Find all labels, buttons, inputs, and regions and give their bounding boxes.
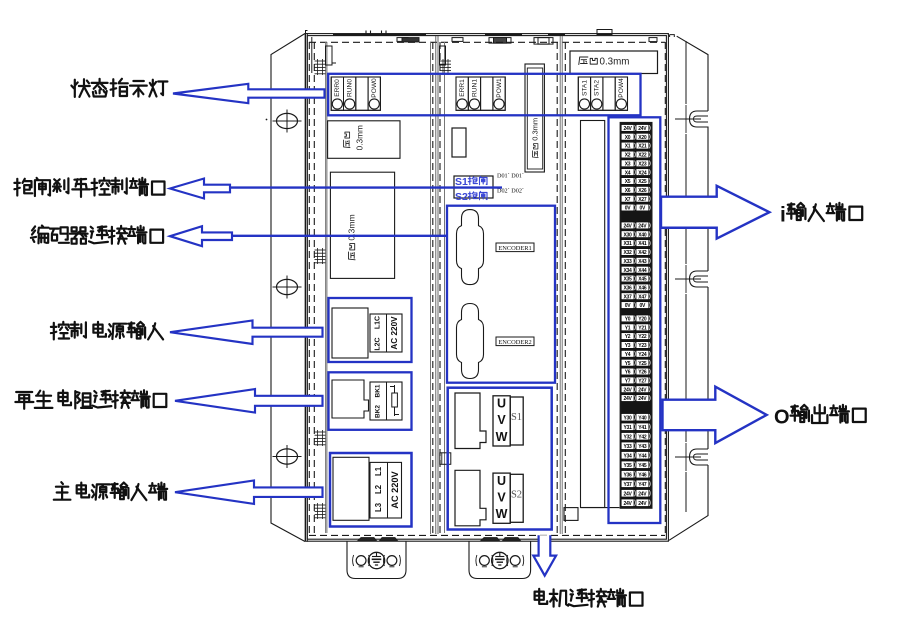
svg-text:STA2: STA2: [594, 80, 601, 96]
svg-text:U: U: [497, 474, 506, 488]
svg-text:ERR1: ERR1: [459, 79, 466, 97]
svg-text:AC 220V: AC 220V: [390, 316, 399, 350]
svg-text:X22: X22: [638, 153, 647, 159]
svg-text:X3: X3: [625, 161, 631, 167]
svg-text:24V: 24V: [624, 396, 633, 402]
svg-text:X47: X47: [638, 294, 647, 300]
svg-text:0V: 0V: [625, 206, 631, 212]
svg-text:Y42: Y42: [638, 434, 647, 440]
svg-text:i: i: [780, 204, 786, 227]
svg-text:L2: L2: [374, 484, 383, 494]
svg-text:24V: 24V: [638, 396, 647, 402]
svg-text:Y36: Y36: [624, 472, 633, 478]
svg-text:Y1: Y1: [625, 325, 631, 331]
svg-text:X4: X4: [625, 170, 631, 176]
svg-text:BK2: BK2: [375, 405, 382, 418]
svg-text:BK1: BK1: [375, 384, 382, 397]
svg-text:X25: X25: [638, 179, 647, 185]
svg-text:Y43: Y43: [638, 444, 647, 450]
svg-text:24V: 24V: [624, 126, 633, 132]
svg-text:Y47: Y47: [638, 482, 647, 488]
svg-text:Y21: Y21: [638, 325, 647, 331]
svg-text:Y6: Y6: [625, 370, 631, 376]
svg-text:X35: X35: [624, 277, 633, 283]
svg-text:X21: X21: [638, 144, 647, 150]
svg-text:0V: 0V: [640, 303, 646, 309]
svg-text:W: W: [496, 430, 508, 444]
svg-text:Y26: Y26: [638, 370, 647, 376]
svg-text:S1: S1: [455, 176, 468, 188]
svg-text:X23: X23: [638, 161, 647, 167]
svg-text:24V: 24V: [638, 501, 647, 507]
svg-text:POW4: POW4: [618, 78, 625, 98]
svg-text:24V: 24V: [638, 387, 647, 393]
svg-text:Y30: Y30: [624, 415, 633, 421]
svg-text:X6: X6: [625, 188, 631, 194]
svg-text:0.3mm: 0.3mm: [355, 125, 364, 150]
svg-text:24V: 24V: [624, 387, 633, 393]
svg-text:X42: X42: [638, 250, 647, 256]
svg-text:Y22: Y22: [638, 334, 647, 340]
svg-text:0V: 0V: [640, 206, 646, 212]
svg-text:Y24: Y24: [638, 352, 647, 358]
svg-text:X41: X41: [638, 241, 647, 247]
svg-text:X0: X0: [625, 135, 631, 141]
svg-text:Y40: Y40: [638, 415, 647, 421]
svg-text:X1: X1: [625, 144, 631, 150]
svg-text:X20: X20: [638, 135, 647, 141]
svg-text:ERR0: ERR0: [334, 79, 341, 97]
svg-text:X27: X27: [638, 197, 647, 203]
svg-text:Y3: Y3: [625, 343, 631, 349]
svg-text:Y20: Y20: [638, 317, 647, 323]
svg-text:Y5: Y5: [625, 361, 631, 367]
svg-text:U: U: [497, 397, 506, 411]
svg-text:Y41: Y41: [638, 425, 647, 431]
svg-text:D01` D01`: D01` D01`: [497, 173, 524, 180]
svg-text:Y32: Y32: [624, 434, 633, 440]
svg-text:24V: 24V: [638, 491, 647, 497]
svg-text:Y31: Y31: [624, 425, 633, 431]
svg-text:Y33: Y33: [624, 444, 633, 450]
svg-text:0V: 0V: [625, 303, 631, 309]
svg-text:V: V: [497, 413, 506, 427]
svg-text:Y27: Y27: [638, 378, 647, 384]
svg-text:S2: S2: [455, 191, 468, 203]
svg-text:L1: L1: [374, 466, 383, 476]
svg-text:L3: L3: [374, 502, 383, 512]
svg-text:24V: 24V: [638, 126, 647, 132]
svg-text:24V: 24V: [624, 491, 633, 497]
svg-text:Y4: Y4: [625, 352, 631, 358]
svg-text:X24: X24: [638, 170, 647, 176]
svg-text:24V: 24V: [638, 224, 647, 230]
svg-text:X33: X33: [624, 259, 633, 265]
svg-text:Y46: Y46: [638, 472, 647, 478]
svg-text:X46: X46: [638, 285, 647, 291]
svg-text:Y7: Y7: [625, 378, 631, 384]
svg-text:24V: 24V: [624, 224, 633, 230]
svg-text:S2: S2: [511, 489, 522, 500]
svg-text:L1C: L1C: [375, 316, 382, 329]
svg-text:POW1: POW1: [496, 78, 503, 98]
svg-text:V: V: [497, 491, 506, 505]
svg-text:L2C: L2C: [375, 337, 382, 350]
svg-text:X36: X36: [624, 285, 633, 291]
svg-text:ENCODER1: ENCODER1: [498, 245, 531, 252]
svg-text:X31: X31: [624, 241, 633, 247]
svg-text:AC 220V: AC 220V: [390, 470, 400, 508]
svg-text:W: W: [496, 507, 508, 521]
svg-text:Y44: Y44: [638, 453, 647, 459]
svg-text:X43: X43: [638, 259, 647, 265]
svg-text:X37: X37: [624, 294, 633, 300]
svg-text:24V: 24V: [624, 501, 633, 507]
svg-text:Y37: Y37: [624, 482, 633, 488]
svg-text:X40: X40: [638, 232, 647, 238]
svg-text:X32: X32: [624, 250, 633, 256]
svg-text:X34: X34: [624, 268, 633, 274]
svg-text:ENCODER2: ENCODER2: [498, 339, 531, 346]
svg-text:X44: X44: [638, 268, 647, 274]
svg-text:0.3mm: 0.3mm: [531, 118, 540, 141]
svg-text:0.3mm: 0.3mm: [600, 57, 630, 68]
svg-text:O: O: [774, 407, 790, 429]
svg-text:RUN1: RUN1: [471, 79, 478, 97]
svg-text:X5: X5: [625, 179, 631, 185]
svg-text:POW0: POW0: [371, 78, 378, 98]
svg-text:Y0: Y0: [625, 317, 631, 323]
svg-text:RUN0: RUN0: [347, 79, 354, 97]
svg-text:STA1: STA1: [581, 80, 588, 96]
svg-text:Y45: Y45: [638, 463, 647, 469]
svg-text:Y23: Y23: [638, 343, 647, 349]
svg-text:X2: X2: [625, 153, 631, 159]
svg-text:X45: X45: [638, 277, 647, 283]
svg-text:Y35: Y35: [624, 463, 633, 469]
svg-text:Y2: Y2: [625, 334, 631, 340]
svg-text:S1: S1: [511, 412, 522, 423]
svg-text:Y25: Y25: [638, 361, 647, 367]
svg-text:X7: X7: [625, 197, 631, 203]
svg-text:Y34: Y34: [624, 453, 633, 459]
svg-text:X30: X30: [624, 232, 633, 238]
svg-text:X26: X26: [638, 188, 647, 194]
